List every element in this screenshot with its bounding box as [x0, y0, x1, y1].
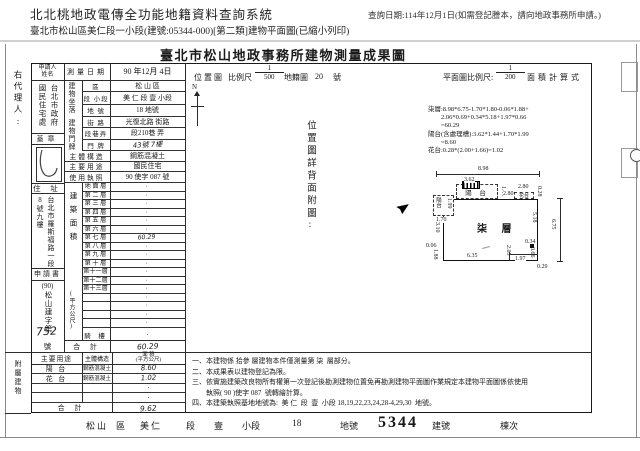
dim-label: 0.29: [537, 264, 548, 270]
floor-area-label: 建築面積: [68, 192, 79, 287]
floor-row: 第 十 層 ·: [82, 260, 185, 269]
dim-tick: [436, 171, 437, 177]
footer-building-unit: 建號: [432, 419, 450, 432]
footer-section: 美仁: [140, 419, 162, 432]
annex-structure: 鋼筋混凝土: [82, 374, 112, 382]
floor-row: 第 七 層 60.29: [82, 234, 185, 243]
location-map-label: 位置圖: [194, 72, 224, 83]
floor-value: ·: [109, 192, 184, 200]
floor-label: 第十一層: [82, 268, 109, 276]
area-total-value: 60.29: [110, 341, 185, 352]
note-line: 四、本建築執照基地地號為: 美 仁 段 壹 小段 18,19,22,23,24,…: [192, 398, 588, 409]
row-value: 松 山 區: [110, 81, 185, 91]
note-line: 三、依實施建築改良物所有權第一次登記後勘測建物位置免再勘測建物平面圖作業規定本建…: [192, 377, 588, 388]
annex-row: ·: [31, 384, 185, 394]
footer-subsection-unit: 小段: [242, 419, 260, 432]
residence-label: 住 址: [31, 183, 64, 193]
annex-header-structure: 主體構造: [82, 352, 112, 364]
cadastral-map-label: 地籍圖: [284, 72, 308, 83]
calc-line: 柒層:8.98*6.75-1.70*1.80-0.06*1.88+: [428, 106, 593, 114]
location-scale-fraction: 1 500: [255, 64, 284, 81]
table-row: 地 號 18 地號: [82, 105, 185, 117]
annex-use: 陽 台: [31, 363, 82, 373]
building-door-rows: 街 路 光復北路 街路 段巷弄 段210巷 弄 門 牌 43號 7樓: [82, 117, 185, 151]
binding-hole-icon: [630, 149, 640, 162]
area-total-label: 合 計: [64, 341, 110, 352]
footer-district-unit: 區: [116, 419, 125, 432]
table-row: 使用執照 90 使字 087 號: [64, 172, 185, 183]
floor-label: 第 五 層: [82, 217, 109, 225]
row-label: 地 號: [82, 105, 110, 115]
agent-label: 右代理人:: [12, 70, 24, 160]
floor-value: ·: [109, 183, 184, 191]
residence-address-right: 台北市羅斯福路一段: [46, 196, 56, 266]
annex-row: 花 台 鋼筋混凝土 1.02: [31, 374, 185, 384]
query-date: 查詢日期:114年12月1日(如需登記謄本，請向地政事務所申請。): [368, 9, 601, 21]
dim-tick: [539, 171, 540, 177]
calc-line: 花台:0.28*(2.00+1.66)=1.02: [428, 147, 593, 155]
floor-label: [82, 319, 109, 327]
dimension-line: [560, 198, 561, 262]
floor-value: ·: [109, 302, 184, 310]
table-row: 主要用途 國民住宅: [64, 162, 185, 173]
row-value: 光復北路 街路: [110, 117, 185, 127]
dim-label: 1.88: [432, 249, 438, 260]
floor-value: ·: [109, 251, 184, 259]
annex-area: ·: [112, 384, 185, 392]
floor-area-rows: 地 面 層 · 第 二 層 · 第 三 層 · 第 四 層 · 第 五 層 · …: [82, 183, 185, 328]
back-note-vertical: 位置圖詳背面附圖:: [303, 120, 317, 230]
floor-label: 第十二層: [82, 277, 109, 285]
survey-date-label: 測量日期: [64, 63, 110, 80]
notes-block: 一、本建物係 拾參 層建物本件僅測量第 柒 層部分。 二、本成果表以建物登記為限…: [192, 356, 588, 409]
grid-line: [64, 63, 65, 352]
floor-value: ·: [109, 260, 184, 268]
annex-rows: 陽 台 鋼筋混凝土 8.60 花 台 鋼筋混凝土 1.02 · ·: [31, 364, 185, 403]
floor-row: ·: [82, 311, 185, 320]
annex-header-use: 主要用途: [31, 352, 82, 364]
row-label: 主體構造: [64, 151, 110, 161]
floor-row: 第 五 層 ·: [82, 217, 185, 226]
row-value: 段210巷 弄: [110, 128, 185, 138]
flower-box: 花台: [514, 192, 534, 199]
dim-label: 6.35: [467, 253, 478, 259]
floor-label: 地 面 層: [82, 183, 109, 191]
calc-title: 面積計算式: [527, 72, 582, 83]
floor-label: [82, 302, 109, 310]
applicant-name-left: 國民住宅處: [37, 84, 48, 132]
sheet-bottom-edge: [0, 437, 640, 438]
arcade-label: 騎 樓: [82, 329, 110, 340]
floor-value: ·: [109, 268, 184, 276]
dim-label: 3.62: [464, 177, 475, 183]
row-label: 段 小段: [82, 93, 110, 103]
floor-value: ·: [109, 319, 184, 327]
dim-label: 1.99: [446, 198, 452, 209]
floor-row: ·: [82, 302, 185, 311]
floor-label: 第 二 層: [82, 192, 109, 200]
floor-value: ·: [109, 209, 184, 217]
dim-label: 2.80: [518, 184, 529, 190]
annex-row: ·: [31, 393, 185, 403]
document-line: 臺北市松山區美仁段一小段(建號:05344-000)[第二類]建物平面圖(已縮小…: [30, 23, 349, 37]
annex-area: ·: [112, 394, 185, 402]
area-calculation: 柒層:8.98*6.75-1.70*1.80-0.06*1.88+ 2.06*0…: [428, 106, 593, 155]
floor-label: 第 十 層: [82, 260, 109, 268]
note-line: 二、本成果表以建物登記為限。: [192, 367, 588, 378]
annex-structure: 鋼筋混凝土: [82, 364, 112, 372]
floor-value: ·: [109, 285, 184, 293]
sheet-left-edge: [5, 44, 6, 437]
dim-label: 0.66: [529, 247, 535, 258]
dim-tick: [557, 261, 563, 262]
plan-scale-fraction: 1 200: [496, 64, 525, 81]
floor-value: ·: [109, 243, 184, 251]
floor-label: 第 四 層: [82, 209, 109, 217]
annex-use: 花 台: [31, 373, 82, 383]
application-number: 752: [36, 324, 58, 338]
dim-tick: [557, 198, 563, 199]
plan-post-mark: [530, 244, 534, 248]
table-row: 區 松 山 區: [82, 80, 185, 92]
floor-label: 第 六 層: [82, 226, 109, 234]
footer-land-unit: 地號: [340, 419, 358, 432]
cadastral-map-number-suffix: 號: [333, 72, 341, 83]
floor-value: ·: [109, 200, 184, 208]
row-label: 街 路: [82, 117, 110, 127]
floor-row: 第十二層 ·: [82, 277, 185, 286]
floor-label: [82, 311, 109, 319]
floor-row: 第 八 層 ·: [82, 243, 185, 252]
calc-line: 陽台(含處理槽):3.62*1.44+1.70*1.99: [428, 131, 593, 139]
floor-row: 第 九 層 ·: [82, 251, 185, 260]
footer-unit-suffix: 棟次: [500, 419, 518, 432]
grid-line: [31, 144, 64, 145]
footer-section-unit: 段: [186, 419, 195, 432]
application-label: 申請書: [31, 268, 64, 280]
seal-label: 蓋章: [31, 133, 64, 144]
calc-line: 2.06*0.69+0.34*5.18+1.97*0.66: [428, 114, 593, 122]
floor-row: ·: [82, 319, 185, 328]
dim-label: 8.98: [478, 166, 489, 172]
floor-value: ·: [109, 277, 184, 285]
dim-label: 0.28: [536, 186, 542, 197]
annex-label: 附屬建物: [13, 360, 23, 408]
applicant-label: 申請人 姓名: [31, 63, 64, 80]
note-line: 執照( 90 )使字 087 號轉繪計算。: [192, 388, 588, 399]
land-registry-printout: { "header": { "system_title": "北北桃地政電傳全功…: [0, 0, 640, 451]
floor-area-unit: (平方公尺): [67, 291, 76, 331]
sheet-right-edge: [636, 44, 637, 437]
row-label: 段巷弄: [82, 128, 110, 138]
floor-row: 第 二 層 ·: [82, 192, 185, 201]
footer-subsection: 壹: [214, 419, 223, 432]
floor-label: 第 七 層: [82, 234, 109, 242]
calc-line: =8.60: [428, 139, 593, 147]
annex-area: 1.02: [112, 372, 185, 384]
row-value: 美 仁 段 壹 小段: [110, 93, 185, 103]
floor-row: ·: [82, 294, 185, 303]
row-label: 使用執照: [64, 172, 110, 182]
dim-label: 2.80: [503, 191, 514, 197]
plan-scale-label: 平面圖比例尺:: [443, 72, 493, 83]
sheet-title: 臺北市松山地政事務所建物測量成果圖: [160, 45, 407, 64]
row-label: 主要用途: [64, 161, 110, 171]
row-value: 18 地號: [110, 105, 185, 115]
note-line: 一、本建物係 拾參 層建物本件僅測量第 柒 層部分。: [192, 356, 588, 367]
table-row: 門 牌 43號 7樓: [82, 140, 185, 151]
floor-row: 第十一層 ·: [82, 268, 185, 277]
location-scale-label: 比例尺: [228, 72, 252, 83]
floor-row: 第 四 層 ·: [82, 209, 185, 218]
residence-address-left: 8號九樓: [35, 196, 45, 236]
floor-row: 第 三 層 ·: [82, 200, 185, 209]
applicant-name-right: 台北市政府: [49, 84, 60, 132]
footer-building-number: 5344: [378, 414, 418, 432]
header-divider: [0, 40, 640, 42]
floor-value: ·: [109, 294, 184, 302]
corner-mark: [621, 62, 638, 92]
row-value: 鋼筋混凝土: [110, 151, 185, 161]
table-row: 段 小段 美 仁 段 壹 小段: [82, 92, 185, 104]
annex-total-value: 9.62: [112, 403, 185, 413]
building-info-rows: 主體構造 鋼筋混凝土 主要用途 國民住宅 使用執照 90 使字 087 號: [64, 151, 185, 183]
dim-label: 6.75: [550, 219, 556, 230]
footer-district: 松山: [86, 419, 108, 432]
building-site-label: 建物坐落: [67, 82, 77, 116]
floor-label: 第 八 層: [82, 243, 109, 251]
dim-label: 1.97: [515, 256, 526, 262]
annex-total-label: 合 計: [31, 403, 112, 413]
application-suffix: 號: [31, 341, 64, 351]
floor-label: [82, 294, 109, 302]
floor-value: ·: [109, 217, 184, 225]
floor-row: 地 面 層 ·: [82, 183, 185, 192]
dim-label: 5.18: [531, 212, 537, 223]
dim-label: 3.10: [434, 222, 440, 233]
grid-line: [5, 413, 31, 414]
room-label: 柒 層: [477, 220, 518, 235]
system-title: 北北桃地政電傳全功能地籍資料查詢系統: [30, 4, 273, 23]
floor-label: 第 九 層: [82, 251, 109, 259]
step-line: [509, 254, 538, 255]
table-row: 主體構造 鋼筋混凝土: [64, 151, 185, 162]
row-value: 國民住宅: [110, 161, 185, 171]
row-value: 43號 7樓: [110, 138, 185, 152]
row-label: 門 牌: [82, 140, 110, 150]
building-site-rows: 區 松 山 區 段 小段 美 仁 段 壹 小段 地 號 18 地號: [82, 80, 185, 117]
survey-date-value: 90 年12月 4日: [110, 63, 185, 80]
footer-land-number: 18: [292, 419, 302, 429]
floor-row: 第十三層 ·: [82, 285, 185, 294]
grid-line: [185, 63, 186, 413]
table-row: 街 路 光復北路 街路: [82, 117, 185, 128]
row-label: 區: [82, 81, 110, 91]
building-door-label: 建物門牌: [67, 119, 77, 151]
arcade-value: ·: [110, 329, 185, 340]
dimension-line: [436, 174, 540, 175]
balcony-left-label: 陽台: [434, 197, 442, 215]
signature-scribble: [37, 148, 59, 179]
floor-label: 第 三 層: [82, 200, 109, 208]
application-prefix: (90): [31, 281, 64, 290]
row-value: 90 使字 087 號: [110, 172, 185, 182]
calc-line: =60.29: [428, 122, 593, 130]
cadastral-map-number: 20: [315, 72, 323, 81]
floor-label: 第十三層: [82, 285, 109, 293]
floor-value: ·: [109, 311, 184, 319]
seal-box: [36, 147, 62, 182]
